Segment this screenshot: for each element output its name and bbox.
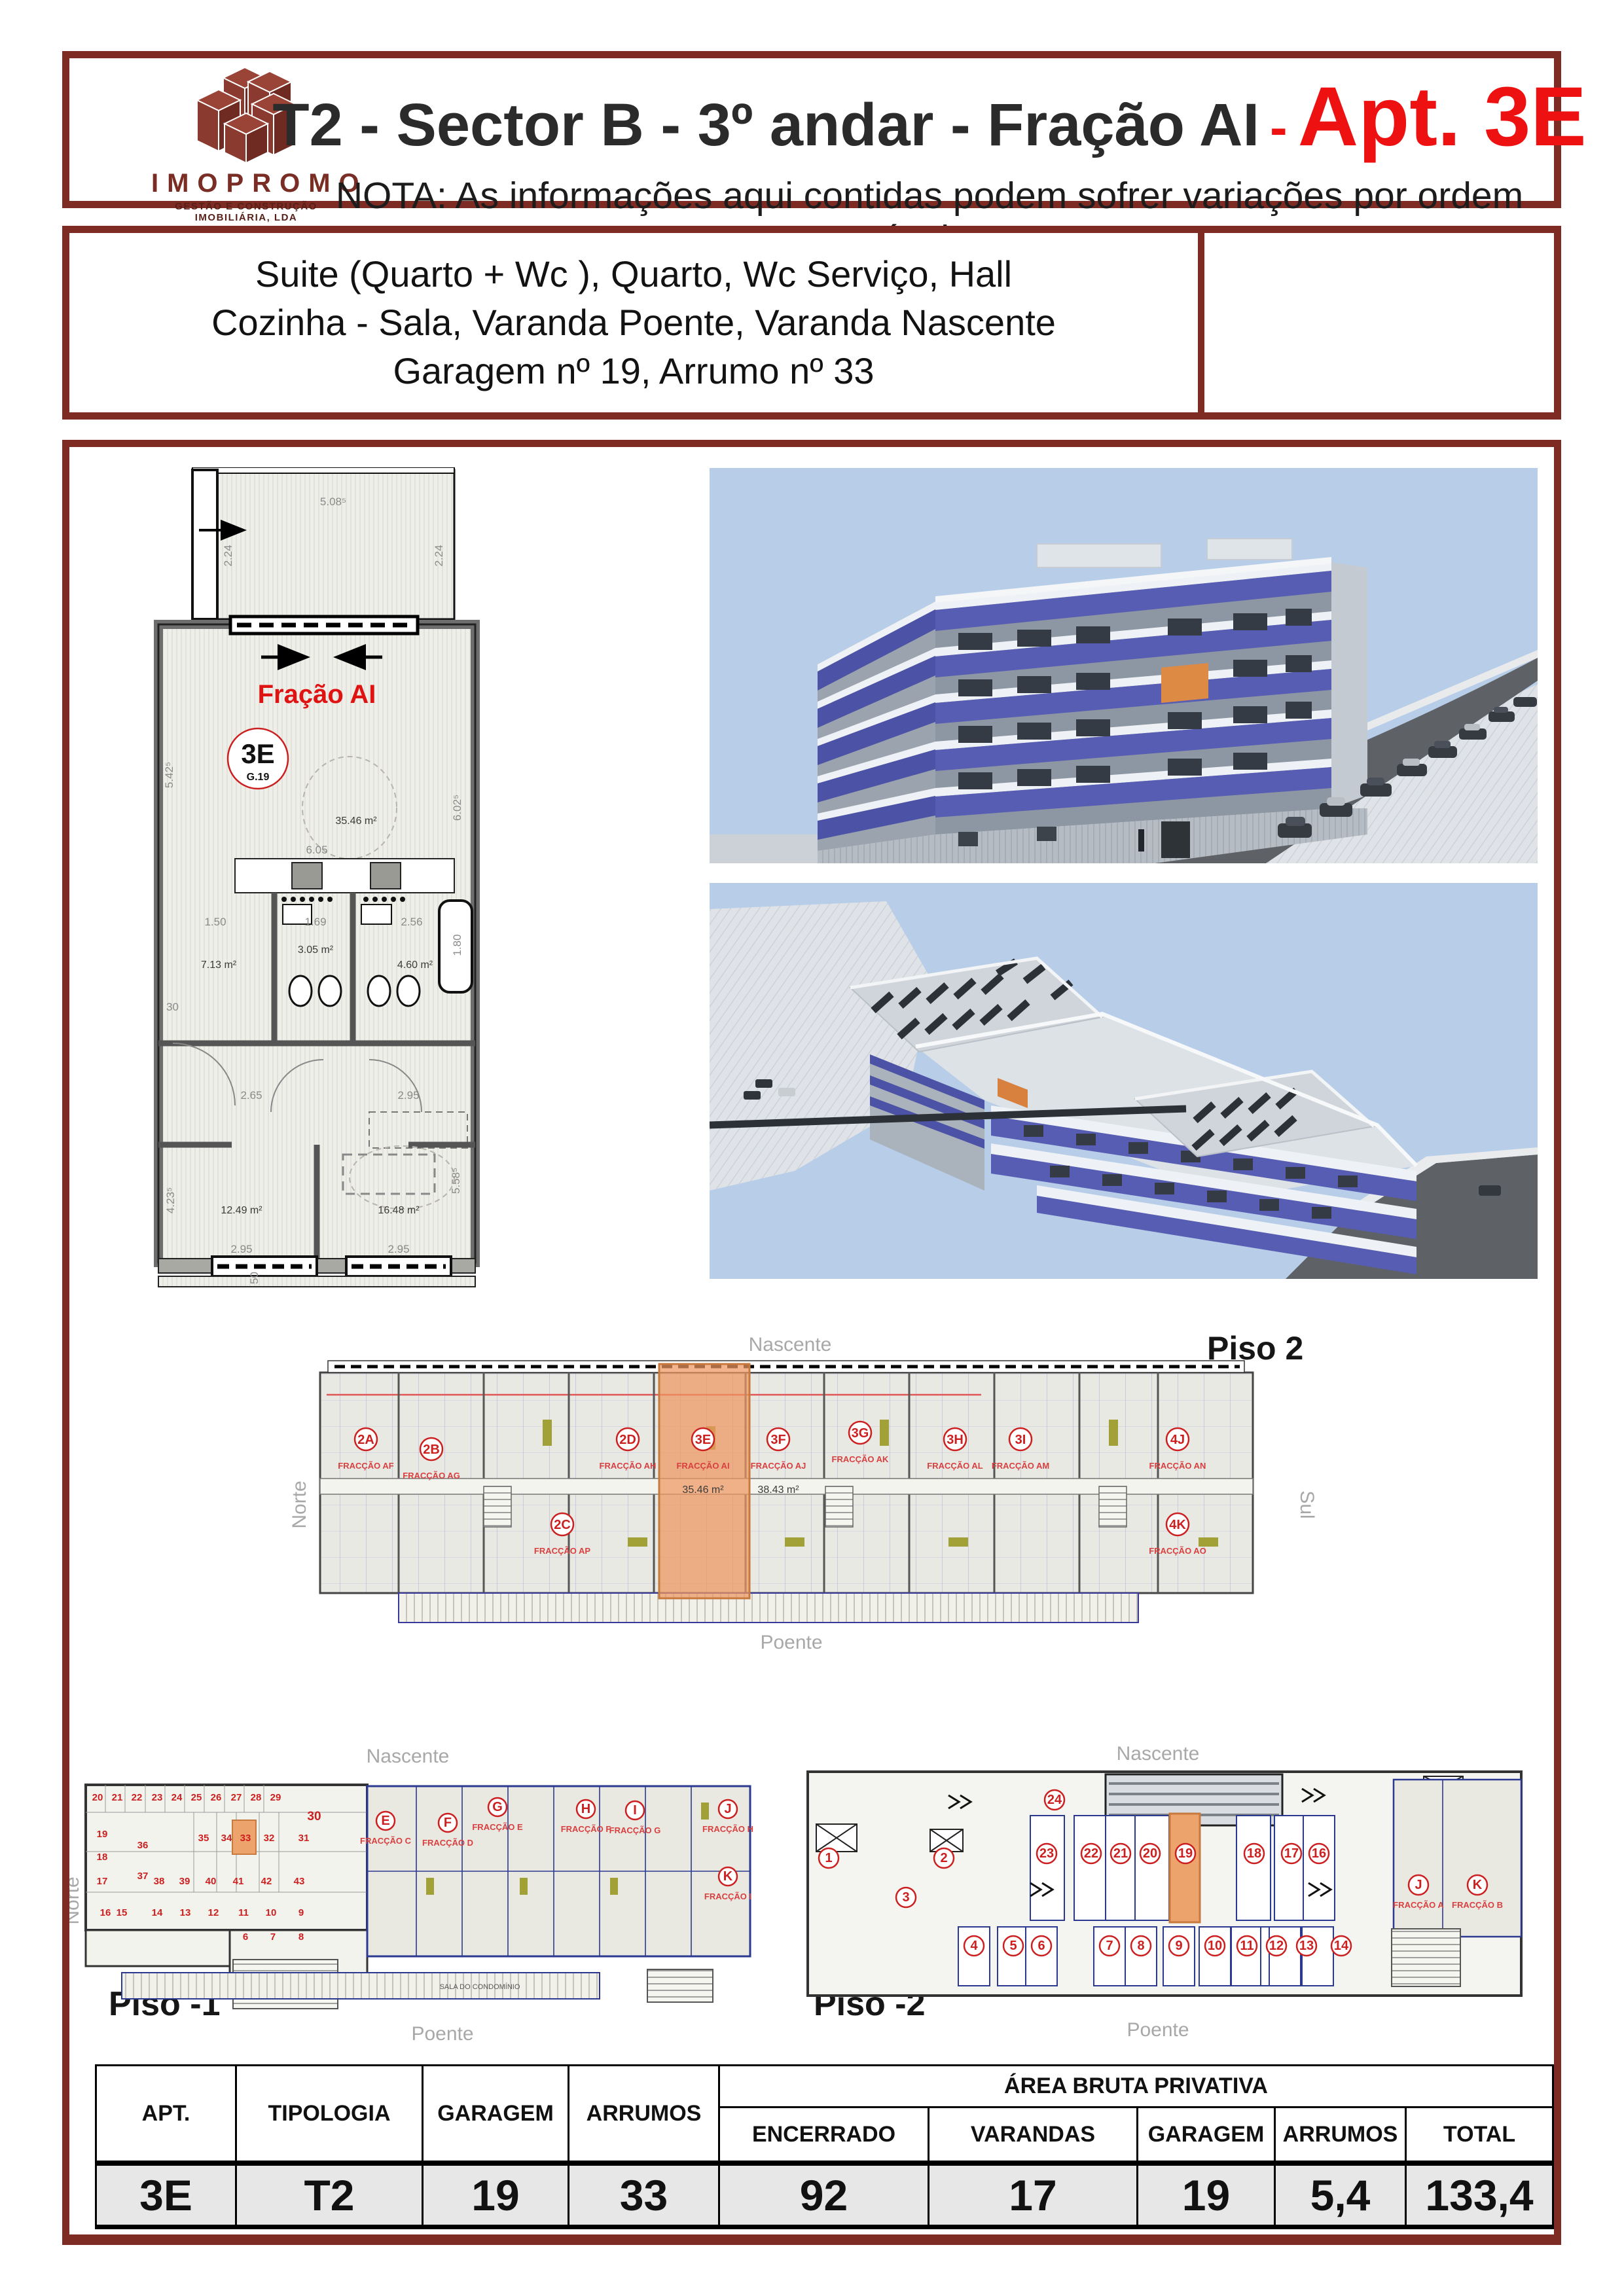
dim-k-right: 2.56 [401,916,422,928]
table-row: 3E T2 19 33 92 17 19 5,4 133,4 [96,2163,1553,2227]
orient-norte: Norte [289,1480,310,1528]
unit-3g-frac: FRACÇÃO AK [832,1454,890,1464]
garage-5: 5 [1009,1939,1017,1953]
garage-20: 20 [1143,1846,1157,1861]
dim-living: 6.05 [306,844,327,856]
garage-18: 18 [1247,1846,1261,1861]
title-black: T2 - Sector B - 3º andar - Fração AI [272,91,1259,160]
unit-2d: 2D [619,1433,636,1447]
storage-16: 16 [100,1907,111,1918]
orient-sul: Sul [1296,1490,1315,1518]
dim-bed2-h: 5.58⁵ [450,1168,462,1194]
unit-j-frac: FRACÇÃO H [702,1824,753,1834]
unit-2c-frac: FRACÇÃO AP [534,1546,591,1556]
value-garagem: 19 [423,2163,569,2227]
unit-3g: 3G [852,1426,869,1441]
col-area-group: ÁREA BRUTA PRIVATIVA [719,2066,1553,2108]
unit-k: K [723,1869,733,1884]
bed1-area: 12.49 m² [221,1205,262,1216]
storage-10: 10 [266,1907,277,1918]
header-box: IMOPROMO GESTÃO E CONSTRUÇÃO IMOBILIÁRIA… [62,51,1561,208]
garage-13: 13 [1299,1939,1314,1953]
storage-39: 39 [179,1876,190,1887]
storage-37: 37 [137,1871,149,1882]
bed2-area: 16.48 m² [378,1205,420,1216]
suite-wc-area: 4.60 m² [397,960,433,971]
unit-2a: 2A [357,1433,374,1447]
unit-h-frac: FRACÇÃO F [561,1824,611,1834]
unit-j-frac: FRACÇÃO A [1393,1900,1444,1910]
orient-nascente: Nascente [1117,1743,1200,1765]
col-encerrado: ENCERRADO [719,2108,929,2164]
value-encerrado: 92 [719,2163,929,2227]
value-garagem2: 19 [1138,2163,1275,2227]
storage-17: 17 [97,1876,108,1887]
unit-4k: 4K [1169,1518,1186,1532]
dim-bed1: 2.95 [230,1243,252,1255]
unit-3i-frac: FRACÇÃO AM [992,1461,1049,1471]
garage-16: 16 [1312,1846,1326,1861]
piso2-plan: Piso 2 Nascente Poente Norte Sul [287,1321,1315,1655]
unit-e-frac: FRACÇÃO C [360,1836,412,1846]
dim-rail: 50 [248,1272,261,1284]
value-apt: 3E [96,2163,236,2227]
piso-minus2-plan: Nascente Poente Piso -2 [804,1740,1531,2048]
garage-8: 8 [1137,1939,1144,1953]
storage-9: 9 [298,1907,304,1918]
storage-36: 36 [137,1840,149,1851]
storage-21: 21 [112,1792,123,1803]
unit-g-frac: FRACÇÃO E [472,1822,523,1832]
unit-k-frac: FRACÇÃO I [704,1892,751,1901]
storage-42: 42 [261,1876,272,1887]
col-tipologia: TIPOLOGIA [236,2066,423,2164]
wc-area: 3.05 m² [298,944,334,956]
dim-k-mid: 1.69 [304,916,326,928]
description-line-1: Suite (Quarto + Wc ), Quarto, Wc Serviço… [69,250,1198,298]
unit-4j: 4J [1170,1433,1185,1447]
areas-table-wrap: APT. TIPOLOGIA GARAGEM ARRUMOS ÁREA BRUT… [95,2064,1554,2229]
garage-6: 6 [1038,1939,1045,1953]
garage-17: 17 [1284,1846,1299,1861]
unit-i: I [633,1803,637,1818]
value-varandas: 17 [929,2163,1138,2227]
storage-18: 18 [97,1852,108,1863]
unit-4k-frac: FRACÇÃO AO [1149,1546,1206,1556]
dim-right-h: 6.02⁵ [451,795,463,821]
storage-14: 14 [152,1907,163,1918]
road-car [1479,1185,1501,1196]
storage-13: 13 [180,1907,191,1918]
unit-h: H [581,1802,590,1816]
dim-top-right: 2.24 [433,545,445,566]
storage-23: 23 [152,1792,163,1803]
description-divider [1198,233,1204,412]
kitchen-area: 7.13 m² [201,960,237,971]
dim-tub: 1.80 [451,934,463,956]
unit-k-frac: FRACÇÃO B [1452,1900,1503,1910]
dim-hall2: 2.95 [397,1089,419,1102]
top-balcony: 5.08⁵ 2.24 2.24 [192,467,454,619]
bottom-balconies: 50 [158,1257,475,1287]
living-area: 35.46 m² [335,816,377,827]
storage-33: 33 [240,1833,251,1844]
storage-35: 35 [198,1833,209,1844]
storage-38: 38 [154,1876,165,1887]
orient-norte: Norte [69,1876,83,1924]
garage-7: 7 [1106,1939,1113,1953]
unit-4j-frac: FRACÇÃO AN [1149,1461,1206,1471]
garage-21: 21 [1113,1846,1128,1861]
orient-nascente: Nascente [749,1334,832,1355]
storage-22: 22 [132,1792,143,1803]
col-garagem: GARAGEM [423,2066,569,2164]
orient-poente: Poente [760,1632,822,1653]
unit-k: K [1473,1878,1483,1892]
col-total: TOTAL [1406,2108,1553,2164]
storage-24: 24 [171,1792,183,1803]
dim-k-left: 1.50 [204,916,226,928]
garage-12: 12 [1269,1939,1284,1953]
storage-15: 15 [117,1907,128,1918]
unit-3f-frac: FRACÇÃO AJ [751,1461,806,1471]
orient-nascente: Nascente [367,1746,450,1767]
logo-brand: IMOPROMO [151,169,341,198]
garage-22: 22 [1084,1846,1098,1861]
storage-41: 41 [233,1876,244,1887]
garage-19: 19 [1178,1846,1193,1861]
unit-f-frac: FRACÇÃO D [422,1838,473,1848]
condo-room-label: SALA DO CONDOMÍNIO [440,1982,520,1991]
page-title: T2 - Sector B - 3º andar - Fração AI - A… [331,69,1528,165]
title-separator: - [1270,98,1288,158]
storage-34: 34 [221,1833,232,1844]
areas-table: APT. TIPOLOGIA GARAGEM ARRUMOS ÁREA BRUT… [95,2064,1554,2229]
dim-hall: 2.65 [240,1089,262,1102]
highlighted-garage-19 [1170,1814,1200,1922]
highlighted-unit [1161,663,1208,703]
piso-minus1-plan: Nascente Poente Norte Piso -1 20 21 [69,1740,789,2048]
unit-2d-frac: FRACÇÃO AH [600,1461,657,1471]
unit-3f: 3F [770,1433,785,1447]
storage-40: 40 [206,1876,217,1887]
storage-30: 30 [307,1810,321,1823]
garage-3: 3 [902,1890,909,1905]
storage-27: 27 [231,1792,242,1803]
storage-11: 11 [238,1907,249,1918]
garage-14: 14 [1334,1939,1349,1953]
unit-e: E [381,1814,389,1828]
building-render-aerial-view [710,883,1538,1279]
garage-1: 1 [825,1851,832,1865]
unit-3e-frac: FRACÇÃO AI [676,1461,729,1471]
description-line-3: Garagem nº 19, Arrumo nº 33 [69,347,1198,395]
storage-19: 19 [97,1829,108,1840]
description-box: Suite (Quarto + Wc ), Quarto, Wc Serviço… [62,226,1561,420]
dim-bed1-h: 4.23⁵ [164,1187,177,1213]
logo-tagline: GESTÃO E CONSTRUÇÃO IMOBILIÁRIA, LDA [151,201,341,223]
building-render-street-view [710,468,1538,863]
apartment-description: Suite (Quarto + Wc ), Quarto, Wc Serviço… [69,233,1198,412]
garage-badge: G.19 [247,772,270,783]
apartment-floor-plan: 5.08⁵ 2.24 2.24 Fração AI 3E G.19 35.46 … [153,467,480,1289]
value-arrumos: 33 [569,2163,719,2227]
highlighted-fraction-3e [659,1364,749,1598]
garage-4: 4 [970,1939,978,1953]
storage-28: 28 [251,1792,262,1803]
storage-12: 12 [208,1907,219,1918]
garage-9: 9 [1175,1939,1182,1953]
value-arrumos2: 5,4 [1275,2163,1406,2227]
col-arrumos: ARRUMOS [569,2066,719,2164]
unit-3h-frac: FRACÇÃO AL [927,1461,983,1471]
dim-wall: 30 [166,1001,179,1013]
storage-26: 26 [211,1792,222,1803]
storage-32: 32 [264,1833,275,1844]
garage-24: 24 [1047,1793,1062,1807]
unit-3h: 3H [947,1433,964,1447]
value-tipologia: T2 [236,2163,423,2227]
dim-top-left: 2.24 [222,545,234,566]
datasheet-page: IMOPROMO GESTÃO E CONSTRUÇÃO IMOBILIÁRIA… [0,0,1624,2296]
storage-8: 8 [298,1931,304,1943]
unit-g: G [492,1800,503,1814]
unit-j: J [1415,1878,1422,1892]
fraction-label: Fração AI [258,680,376,709]
unit-3e: 3E [695,1433,711,1447]
unit-f: F [444,1816,452,1830]
col-apt: APT. [96,2066,236,2164]
unit-3i: 3I [1015,1433,1026,1447]
title-apartment: Apt. 3E [1298,69,1587,165]
unit-2b: 2B [423,1443,440,1457]
col-garagem2: GARAGEM [1138,2108,1275,2164]
dim-left-h: 5.42⁵ [163,762,175,788]
storage-43: 43 [294,1876,305,1887]
description-line-2: Cozinha - Sala, Varanda Poente, Varanda … [69,298,1198,347]
col-varandas: VARANDAS [929,2108,1138,2164]
storage-25: 25 [191,1792,202,1803]
unit-2b-frac: FRACÇÃO AG [403,1471,460,1480]
storage-31: 31 [298,1833,310,1844]
col-arrumos2: ARRUMOS [1275,2108,1406,2164]
storage-29: 29 [270,1792,281,1803]
garage-23: 23 [1039,1846,1054,1861]
unit-3f-area: 38.43 m² [757,1484,799,1496]
orient-poente: Poente [411,2023,473,2045]
value-total: 133,4 [1406,2163,1553,2227]
unit-3e-area: 35.46 m² [682,1484,724,1496]
storage-6: 6 [243,1931,248,1943]
storage-20: 20 [92,1792,103,1803]
unit-2c: 2C [554,1518,571,1532]
storage-7: 7 [270,1931,276,1943]
dim-bed2: 2.95 [388,1243,409,1255]
garage-2: 2 [940,1851,947,1865]
garage-11: 11 [1240,1939,1254,1953]
unit-2a-frac: FRACÇÃO AF [338,1461,394,1471]
dim-top-width: 5.08⁵ [320,495,346,508]
unit-i-frac: FRACÇÃO G [609,1825,661,1835]
main-content-box: 5.08⁵ 2.24 2.24 Fração AI 3E G.19 35.46 … [62,440,1561,2245]
orient-poente: Poente [1127,2019,1189,2041]
garage-10: 10 [1208,1939,1222,1953]
unit-j: J [724,1802,731,1816]
unit-badge: 3E [241,738,274,769]
